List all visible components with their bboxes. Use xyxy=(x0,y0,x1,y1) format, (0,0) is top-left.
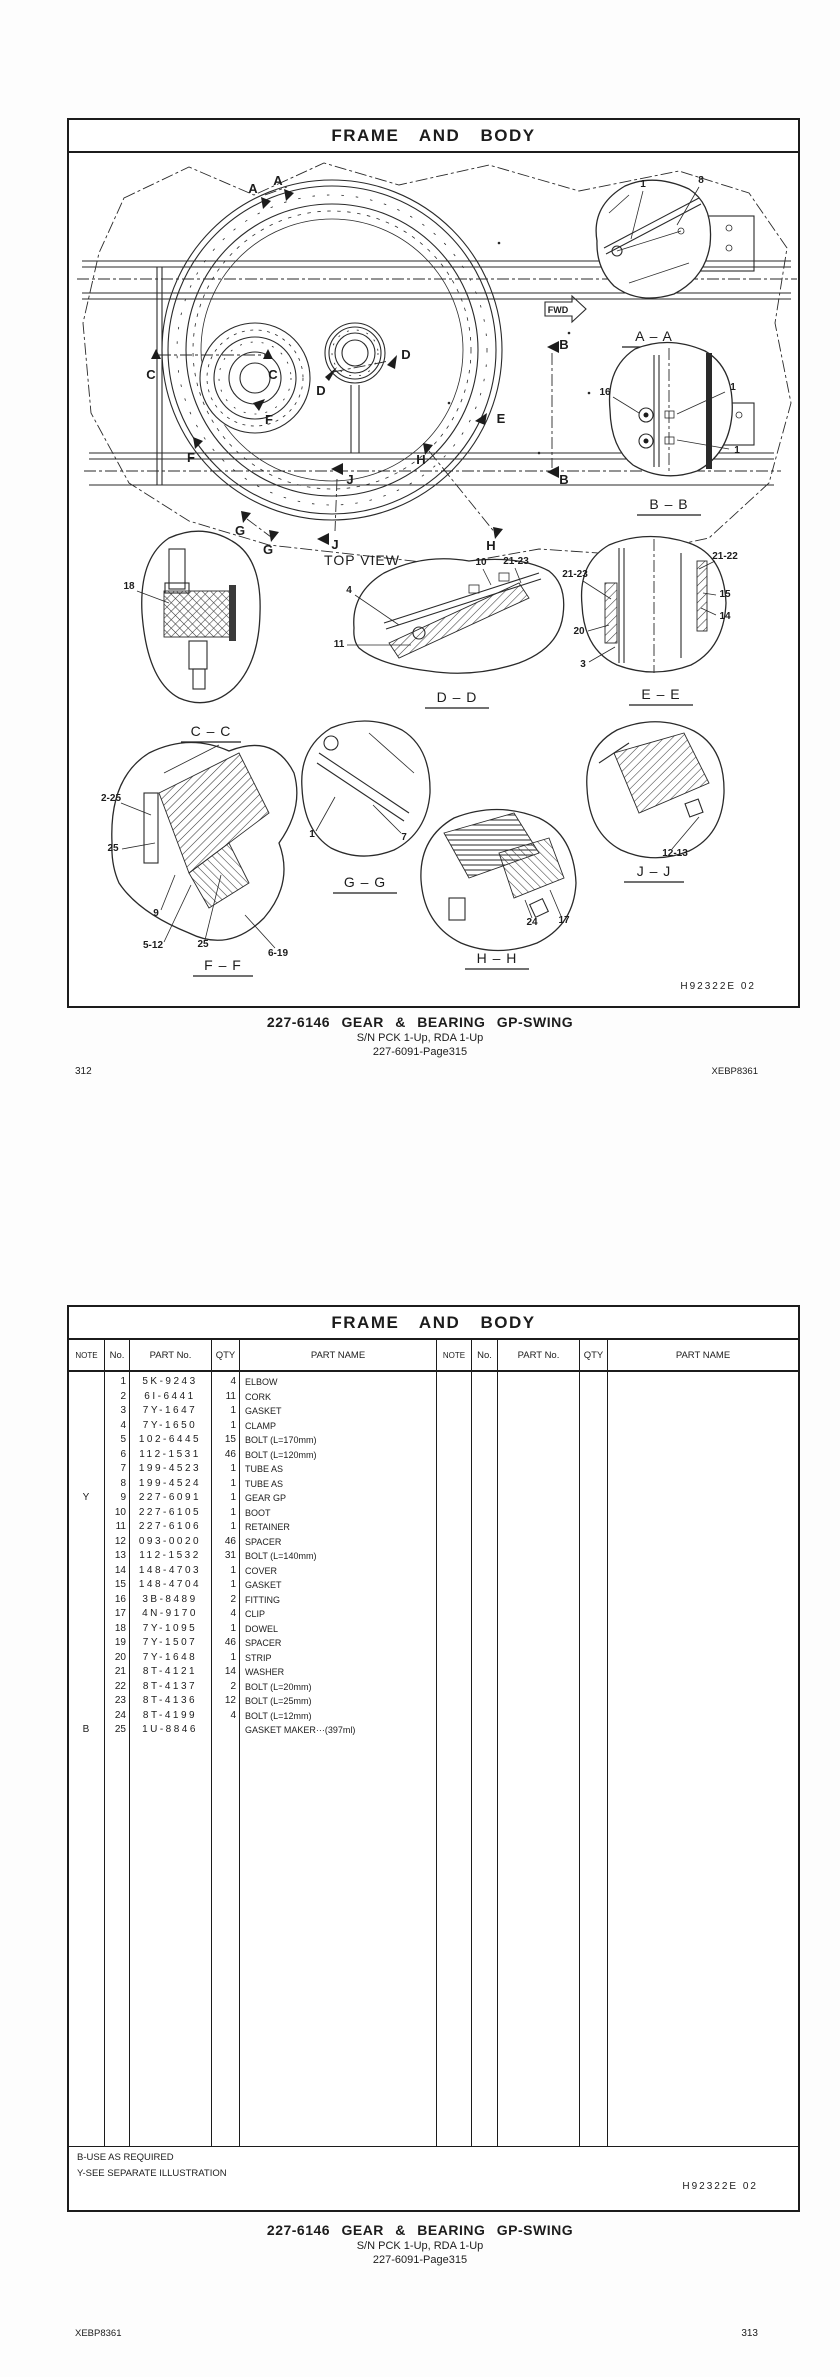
cell-qty: 15 xyxy=(211,1433,236,1448)
cell-part: 102-6445 xyxy=(130,1433,210,1448)
cell-qty: 1 xyxy=(211,1419,236,1434)
section-view-jj: 12-13 J – J xyxy=(587,722,724,882)
section-letter: D xyxy=(401,347,410,362)
section-letter: A xyxy=(248,181,258,196)
callout: 1 xyxy=(309,829,315,840)
cell-qty: 12 xyxy=(211,1694,236,1709)
cell-qty: 1 xyxy=(211,1578,236,1593)
callout: 14 xyxy=(719,611,731,622)
cell-part: 227-6091 xyxy=(130,1491,210,1506)
cell-no: 8 xyxy=(104,1477,126,1492)
doc-code: H92322E 02 xyxy=(682,2179,758,2195)
cell-name: CLIP xyxy=(245,1607,435,1622)
cell-name: TUBE AS xyxy=(245,1462,435,1477)
parts-rows: 15K-92434ELBOW26I-644111CORK37Y-16471GAS… xyxy=(69,1375,798,1738)
cell-part: 7Y-1650 xyxy=(130,1419,210,1434)
cell-name: BOLT (L=140mm) xyxy=(245,1549,435,1564)
cell-part: 7Y-1648 xyxy=(130,1651,210,1666)
page-1: FRAME AND BODY .ln{stroke:#2a2a2a;stroke… xyxy=(67,118,800,1008)
callout: 5-12 xyxy=(143,940,163,951)
col-note-2: NOTE xyxy=(437,1340,472,1370)
cell-name: STRIP xyxy=(245,1651,435,1666)
cell-no: 1 xyxy=(104,1375,126,1390)
callout: 25 xyxy=(197,939,209,950)
callout: 9 xyxy=(153,908,159,919)
callout: 16 xyxy=(599,387,611,398)
table-row: 47Y-16501CLAMP xyxy=(69,1419,798,1434)
section-letter: G xyxy=(263,542,273,557)
cell-qty: 4 xyxy=(211,1375,236,1390)
cell-name: RETAINER xyxy=(245,1520,435,1535)
table-row: 26I-644111CORK xyxy=(69,1390,798,1405)
table-row: 228T-41372BOLT (L=20mm) xyxy=(69,1680,798,1695)
cell-part: 093-0020 xyxy=(130,1535,210,1550)
table-row: 248T-41994BOLT (L=12mm) xyxy=(69,1709,798,1724)
section-view-ee: 21-23 21-22 15 14 20 3 E – E xyxy=(562,536,738,705)
cell-part: 1U-8846 xyxy=(130,1723,210,1738)
cell-no: 14 xyxy=(104,1564,126,1579)
callout: 21-23 xyxy=(562,569,588,580)
cell-qty: 31 xyxy=(211,1549,236,1564)
cell-no: 18 xyxy=(104,1622,126,1637)
cell-qty: 1 xyxy=(211,1491,236,1506)
callout: 18 xyxy=(123,581,135,592)
caption-serial: S/N PCK 1-Up, RDA 1-Up xyxy=(0,2240,840,2252)
table-row: 13112-153231BOLT (L=140mm) xyxy=(69,1549,798,1564)
cell-qty: 1 xyxy=(211,1477,236,1492)
cell-part: 8T-4137 xyxy=(130,1680,210,1695)
cell-qty: 4 xyxy=(211,1607,236,1622)
cell-no: 3 xyxy=(104,1404,126,1419)
cell-part: 148-4704 xyxy=(130,1578,210,1593)
section-letter: A xyxy=(273,173,283,188)
cell-qty: 1 xyxy=(211,1404,236,1419)
page2-caption: 227-6146 GEAR & BEARING GP-SWING S/N PCK… xyxy=(0,2222,840,2266)
cell-part: 7Y-1095 xyxy=(130,1622,210,1637)
cell-qty: 1 xyxy=(211,1462,236,1477)
cell-no: 11 xyxy=(104,1520,126,1535)
table-body: 15K-92434ELBOW26I-644111CORK37Y-16471GAS… xyxy=(69,1370,798,2147)
table-row: 197Y-150746SPACER xyxy=(69,1636,798,1651)
cell-qty: 1 xyxy=(211,1564,236,1579)
cell-no: 2 xyxy=(104,1390,126,1405)
section-letter: C xyxy=(146,367,156,382)
cell-part: 227-6106 xyxy=(130,1520,210,1535)
table-footnotes: B-USE AS REQUIRED Y-SEE SEPARATE ILLUSTR… xyxy=(69,2145,798,2210)
book-code: XEBP8361 xyxy=(75,2328,121,2339)
cell-part: 8T-4199 xyxy=(130,1709,210,1724)
col-no: No. xyxy=(105,1340,130,1370)
cell-part: 199-4524 xyxy=(130,1477,210,1492)
table-row: 15148-47041GASKET xyxy=(69,1578,798,1593)
callout: 21-23 xyxy=(503,556,529,567)
caption-title: 227-6146 GEAR & BEARING GP-SWING xyxy=(0,1014,840,1030)
cell-part: 8T-4136 xyxy=(130,1694,210,1709)
gear-bearing-diagram: .ln{stroke:#2a2a2a;stroke-width:1.1;fill… xyxy=(69,153,798,1003)
cell-no: 6 xyxy=(104,1448,126,1463)
cell-part: 8T-4121 xyxy=(130,1665,210,1680)
cell-name: GASKET MAKER···(397ml) xyxy=(245,1723,435,1738)
section-letter: E xyxy=(497,411,506,426)
cell-part: 112-1532 xyxy=(130,1549,210,1564)
callout: 24 xyxy=(526,917,538,928)
table-row: 238T-413612BOLT (L=25mm) xyxy=(69,1694,798,1709)
table-row: 6112-153146BOLT (L=120mm) xyxy=(69,1448,798,1463)
section-letter: B xyxy=(559,337,568,352)
callout: 7 xyxy=(401,832,407,843)
cell-qty: 1 xyxy=(211,1651,236,1666)
col-part-name: PART NAME xyxy=(240,1340,437,1370)
col-note: NOTE xyxy=(69,1340,105,1370)
table-header: NOTE No. PART No. QTY PART NAME NOTE No.… xyxy=(69,1340,798,1372)
cell-no: 15 xyxy=(104,1578,126,1593)
table-row: 163B-84892FITTING xyxy=(69,1593,798,1608)
cell-no: 9 xyxy=(104,1491,126,1506)
table-row: 7199-45231TUBE AS xyxy=(69,1462,798,1477)
cell-qty: 46 xyxy=(211,1448,236,1463)
cell-qty: 46 xyxy=(211,1535,236,1550)
cell-name: FITTING xyxy=(245,1593,435,1608)
table-row: 187Y-10951DOWEL xyxy=(69,1622,798,1637)
table-row: 218T-412114WASHER xyxy=(69,1665,798,1680)
cell-name: BOOT xyxy=(245,1506,435,1521)
col-part-name-2: PART NAME xyxy=(608,1340,798,1370)
page2-title: FRAME AND BODY xyxy=(69,1307,798,1340)
section-view-bb: 16 1 1 B – B xyxy=(599,342,740,515)
cell-no: 24 xyxy=(104,1709,126,1724)
cell-note: Y xyxy=(69,1491,103,1506)
callout: 25 xyxy=(107,843,119,854)
table-row: 12093-002046SPACER xyxy=(69,1535,798,1550)
cell-name: BOLT (L=25mm) xyxy=(245,1694,435,1709)
doc-code: H92322E 02 xyxy=(680,981,756,992)
section-view-hh: 24 17 H – H xyxy=(421,810,576,970)
cell-part: 6I-6441 xyxy=(130,1390,210,1405)
cell-part: 148-4703 xyxy=(130,1564,210,1579)
page1-caption: 227-6146 GEAR & BEARING GP-SWING S/N PCK… xyxy=(0,1014,840,1058)
callout: 11 xyxy=(334,639,345,650)
fwd-label: FWD xyxy=(548,305,569,315)
cell-no: 5 xyxy=(104,1433,126,1448)
cell-note: B xyxy=(69,1723,103,1738)
top-view-label: TOP VIEW xyxy=(324,552,400,568)
col-qty-2: QTY xyxy=(580,1340,608,1370)
book-code: XEBP8361 xyxy=(712,1066,758,1077)
callout: 15 xyxy=(719,589,731,600)
section-letter: F xyxy=(187,450,195,465)
cell-name: BOLT (L=120mm) xyxy=(245,1448,435,1463)
callout: 1 xyxy=(730,382,736,393)
cell-part: 7Y-1647 xyxy=(130,1404,210,1419)
cell-no: 23 xyxy=(104,1694,126,1709)
cell-name: SPACER xyxy=(245,1636,435,1651)
cell-name: BOLT (L=170mm) xyxy=(245,1433,435,1448)
section-view-dd: 4 10 21-23 11 D – D xyxy=(334,556,564,708)
table-row: 174N-91704CLIP xyxy=(69,1607,798,1622)
cell-qty: 14 xyxy=(211,1665,236,1680)
callout: 3 xyxy=(580,659,586,670)
cell-no: 4 xyxy=(104,1419,126,1434)
footnote-b: B-USE AS REQUIRED xyxy=(77,2150,790,2166)
col-part-no: PART No. xyxy=(130,1340,212,1370)
cell-no: 7 xyxy=(104,1462,126,1477)
section-letter: H xyxy=(416,452,425,467)
view-title-aa: A – A xyxy=(635,328,673,344)
cell-qty: 2 xyxy=(211,1680,236,1695)
callout: 8 xyxy=(698,175,704,186)
cell-name: CLAMP xyxy=(245,1419,435,1434)
section-view-ff: 2-25 25 9 5-12 25 6-19 F – F xyxy=(101,742,297,976)
callout: 1 xyxy=(734,445,740,456)
view-title-cc: C – C xyxy=(191,723,232,739)
col-no-2: No. xyxy=(472,1340,498,1370)
section-letter: H xyxy=(486,538,495,553)
table-row: 37Y-16471GASKET xyxy=(69,1404,798,1419)
table-row: 15K-92434ELBOW xyxy=(69,1375,798,1390)
cell-part: 227-6105 xyxy=(130,1506,210,1521)
fwd-arrow: FWD xyxy=(545,296,586,322)
cell-part: 4N-9170 xyxy=(130,1607,210,1622)
view-title-dd: D – D xyxy=(437,689,478,705)
swing-drive-gear xyxy=(199,322,311,434)
cell-name: SPACER xyxy=(245,1535,435,1550)
callout: 4 xyxy=(346,585,352,596)
col-qty: QTY xyxy=(212,1340,240,1370)
view-title-bb: B – B xyxy=(649,496,688,512)
cell-qty: 11 xyxy=(211,1390,236,1405)
cell-name: GEAR GP xyxy=(245,1491,435,1506)
cell-no: 20 xyxy=(104,1651,126,1666)
catalog-spread: { "page1": { "header_title": "FRAME AND … xyxy=(0,0,840,2377)
cell-name: COVER xyxy=(245,1564,435,1579)
cell-no: 16 xyxy=(104,1593,126,1608)
cell-no: 22 xyxy=(104,1680,126,1695)
callout: 1 xyxy=(640,179,646,190)
cell-name: WASHER xyxy=(245,1665,435,1680)
cell-name: BOLT (L=20mm) xyxy=(245,1680,435,1695)
cell-qty: 46 xyxy=(211,1636,236,1651)
callout: 12-13 xyxy=(662,848,688,859)
section-letter: J xyxy=(346,472,353,487)
section-view-gg: 1 7 G – G xyxy=(302,721,430,893)
table-row: 14148-47031COVER xyxy=(69,1564,798,1579)
section-view-cc: 18 C – C xyxy=(123,531,260,742)
center-hub xyxy=(323,321,387,453)
cell-name: CORK xyxy=(245,1390,435,1405)
callout: 17 xyxy=(558,915,570,926)
cell-no: 21 xyxy=(104,1665,126,1680)
section-letter: F xyxy=(265,412,273,427)
cell-qty: 1 xyxy=(211,1622,236,1637)
view-title-gg: G – G xyxy=(344,874,386,890)
cell-name: TUBE AS xyxy=(245,1477,435,1492)
section-letter: B xyxy=(559,472,568,487)
cell-part: 112-1531 xyxy=(130,1448,210,1463)
page-2: FRAME AND BODY NOTE No. PART No. QTY PAR… xyxy=(67,1305,800,2212)
caption-title: 227-6146 GEAR & BEARING GP-SWING xyxy=(0,2222,840,2238)
view-title-ee: E – E xyxy=(641,686,680,702)
cell-name: GASKET xyxy=(245,1404,435,1419)
cell-name: BOLT (L=12mm) xyxy=(245,1709,435,1724)
table-row: 8199-45241TUBE AS xyxy=(69,1477,798,1492)
cell-no: 17 xyxy=(104,1607,126,1622)
section-view-aa: 1 8 A – A xyxy=(596,175,710,347)
callout: 10 xyxy=(475,557,487,568)
view-title-hh: H – H xyxy=(477,950,518,966)
table-row: Y9227-60911GEAR GP xyxy=(69,1491,798,1506)
cell-qty: 1 xyxy=(211,1520,236,1535)
cell-name: DOWEL xyxy=(245,1622,435,1637)
callout: 21-22 xyxy=(712,551,738,562)
callout: 2-25 xyxy=(101,793,121,804)
table-row: 5102-644515BOLT (L=170mm) xyxy=(69,1433,798,1448)
cell-name: GASKET xyxy=(245,1578,435,1593)
col-part-no-2: PART No. xyxy=(498,1340,580,1370)
table-row: 11227-61061RETAINER xyxy=(69,1520,798,1535)
cell-no: 13 xyxy=(104,1549,126,1564)
cell-qty: 1 xyxy=(211,1506,236,1521)
cell-qty: 2 xyxy=(211,1593,236,1608)
caption-page-ref: 227-6091-Page315 xyxy=(0,1046,840,1058)
callout: 6-19 xyxy=(268,948,288,959)
view-title-ff: F – F xyxy=(204,957,242,973)
section-letter: G xyxy=(235,523,245,538)
table-row: B251U-8846GASKET MAKER···(397ml) xyxy=(69,1723,798,1738)
cell-no: 10 xyxy=(104,1506,126,1521)
cell-part: 7Y-1507 xyxy=(130,1636,210,1651)
cell-part: 5K-9243 xyxy=(130,1375,210,1390)
section-letter: J xyxy=(331,537,338,552)
callout: 20 xyxy=(573,626,585,637)
section-letter: C xyxy=(268,367,278,382)
cell-qty: 4 xyxy=(211,1709,236,1724)
caption-page-ref: 227-6091-Page315 xyxy=(0,2254,840,2266)
page-number-312: 312 xyxy=(75,1066,92,1077)
section-letter: D xyxy=(316,383,325,398)
cell-no: 12 xyxy=(104,1535,126,1550)
page-number-313: 313 xyxy=(741,2328,758,2339)
cell-no: 19 xyxy=(104,1636,126,1651)
table-row: 207Y-16481STRIP xyxy=(69,1651,798,1666)
page1-title: FRAME AND BODY xyxy=(69,120,798,153)
view-title-jj: J – J xyxy=(637,863,672,879)
cell-part: 3B-8489 xyxy=(130,1593,210,1608)
cell-name: ELBOW xyxy=(245,1375,435,1390)
caption-serial: S/N PCK 1-Up, RDA 1-Up xyxy=(0,1032,840,1044)
cell-part: 199-4523 xyxy=(130,1462,210,1477)
table-row: 10227-61051BOOT xyxy=(69,1506,798,1521)
cell-no: 25 xyxy=(104,1723,126,1738)
